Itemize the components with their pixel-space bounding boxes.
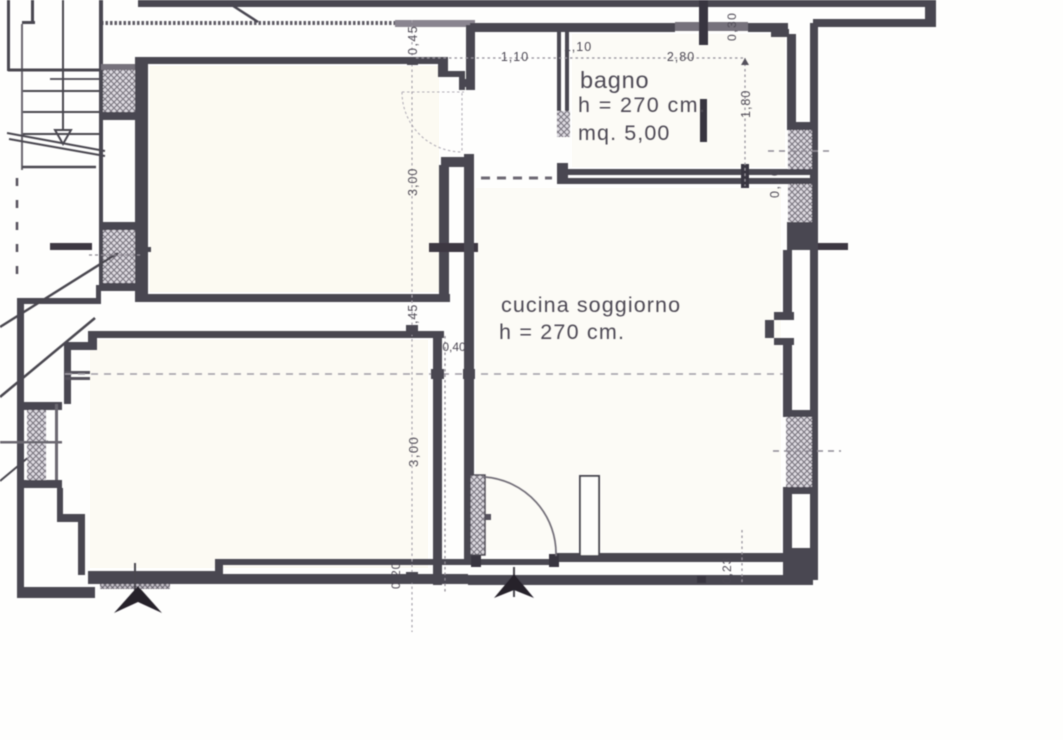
svg-text:0,45: 0,45 [406,25,420,55]
svg-text:bagno: bagno [580,67,649,93]
svg-text:3,00: 3,00 [406,436,421,467]
svg-text:cucina soggiorno: cucina soggiorno [501,293,681,317]
svg-text:0,23: 0,23 [720,557,734,584]
svg-text:h = 270 cm.: h = 270 cm. [499,320,625,344]
svg-text:mq. 5,00: mq. 5,00 [578,121,670,145]
svg-text:0,20: 0,20 [389,562,403,589]
svg-text:1,10: 1,10 [501,50,529,64]
svg-text:0,45: 0,45 [406,304,420,332]
svg-text:1,80: 1,80 [739,90,753,118]
svg-text:1,10: 1,10 [564,40,592,54]
svg-text:0,30: 0,30 [725,12,739,41]
svg-text:0,10: 0,10 [768,168,782,198]
svg-text:2,80: 2,80 [667,50,695,64]
svg-text:0,40: 0,40 [442,340,466,354]
svg-text:h = 270 cm.: h = 270 cm. [578,93,706,117]
svg-text:3,00: 3,00 [406,168,420,196]
